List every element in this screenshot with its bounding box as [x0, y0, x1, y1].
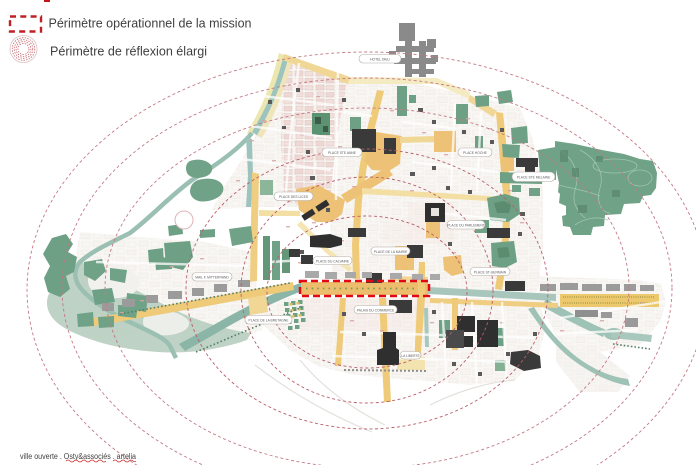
svg-text:Périmètre de réflexion élargi: Périmètre de réflexion élargi [50, 44, 207, 59]
svg-text:PLACE HOCHE: PLACE HOCHE [463, 151, 487, 155]
svg-text:PLACE DU CALVAIRE: PLACE DU CALVAIRE [316, 259, 350, 263]
svg-text:PLACE DE LA BRETAGNE: PLACE DE LA BRETAGNE [249, 319, 290, 323]
svg-text:MAIL F. MITTERRAND: MAIL F. MITTERRAND [195, 276, 229, 280]
svg-text:PLACE DES LICES: PLACE DES LICES [279, 195, 309, 199]
svg-text:HOTEL DIEU: HOTEL DIEU [370, 58, 390, 62]
svg-text:PLACE DU PARLEMENT: PLACE DU PARLEMENT [447, 224, 484, 228]
svg-text:LA LIBERTE: LA LIBERTE [401, 354, 420, 358]
svg-text:PLACE DE LA MAIRIE: PLACE DE LA MAIRIE [374, 250, 408, 254]
svg-text:PLACE STE ANNE: PLACE STE ANNE [328, 151, 357, 155]
svg-text:ville ouverte . Osty&associés: ville ouverte . Osty&associés . artelia [20, 452, 136, 461]
svg-text:PLACE ST-GERMAIN: PLACE ST-GERMAIN [474, 270, 507, 274]
svg-text:PALAIS DU COMMERCE: PALAIS DU COMMERCE [357, 308, 395, 312]
svg-text:Périmètre opérationnel de la m: Périmètre opérationnel de la mission [49, 16, 252, 31]
svg-text:PLACE STE MELAINE: PLACE STE MELAINE [517, 176, 551, 180]
